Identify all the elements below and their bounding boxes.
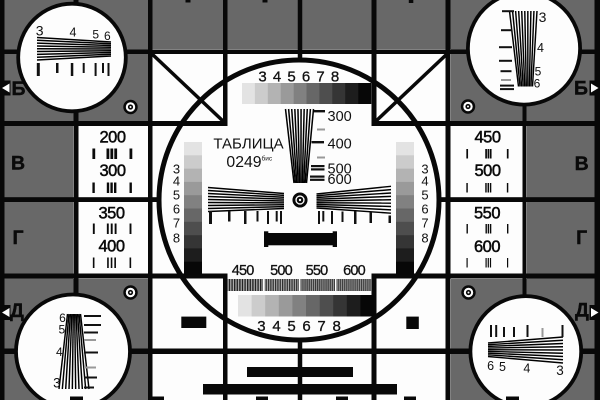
svg-text:4: 4 [272,318,280,335]
svg-text:Г: Г [576,227,587,249]
svg-text:4: 4 [70,26,77,40]
svg-text:8: 8 [421,231,428,246]
svg-text:3: 3 [556,363,564,378]
svg-text:ТАБЛИЦА: ТАБЛИЦА [213,136,283,153]
svg-text:600: 600 [474,238,500,256]
svg-text:7: 7 [316,69,324,86]
svg-text:В: В [11,153,25,175]
svg-text:7: 7 [173,216,180,231]
svg-text:5: 5 [421,188,428,203]
svg-text:бис: бис [262,155,273,163]
svg-text:7: 7 [317,318,325,335]
svg-text:8: 8 [331,69,339,86]
svg-text:500: 500 [270,263,293,279]
svg-text:6: 6 [302,69,310,86]
svg-text:5: 5 [59,323,66,337]
svg-text:8: 8 [333,318,341,335]
svg-text:4: 4 [56,345,63,359]
svg-text:6: 6 [487,359,494,373]
svg-text:Б: Б [574,78,588,100]
svg-text:4: 4 [523,362,530,376]
svg-text:600: 600 [343,263,366,279]
svg-text:550: 550 [474,205,500,223]
svg-text:4: 4 [421,174,428,189]
svg-text:3: 3 [258,69,266,86]
svg-text:450: 450 [474,129,500,147]
svg-text:Д: Д [575,300,589,322]
svg-text:600: 600 [328,172,352,188]
svg-text:5: 5 [173,188,180,203]
svg-text:3: 3 [539,9,547,25]
svg-text:4: 4 [273,69,281,86]
svg-text:Б: Б [11,78,25,100]
svg-text:4: 4 [537,41,544,55]
svg-text:3: 3 [36,22,44,38]
svg-text:5: 5 [92,28,99,42]
svg-text:3: 3 [257,318,265,335]
svg-text:400: 400 [328,137,352,153]
svg-text:0249: 0249 [226,154,261,171]
svg-text:3: 3 [53,376,61,391]
svg-text:5: 5 [287,69,295,86]
svg-text:Д: Д [10,300,24,322]
svg-text:450: 450 [232,263,255,279]
svg-text:7: 7 [421,216,428,231]
svg-text:400: 400 [98,238,124,256]
svg-text:6: 6 [534,77,541,91]
svg-text:550: 550 [306,263,329,279]
svg-text:500: 500 [474,162,500,180]
svg-text:4: 4 [173,174,180,189]
svg-text:Г: Г [12,227,23,249]
svg-text:5: 5 [287,318,295,335]
svg-text:300: 300 [328,109,352,125]
svg-text:6: 6 [421,202,428,217]
svg-text:6: 6 [173,202,180,217]
svg-text:5: 5 [499,360,506,374]
svg-text:В: В [575,153,589,175]
svg-text:350: 350 [98,205,124,223]
svg-text:300: 300 [99,162,125,180]
svg-text:6: 6 [302,318,310,335]
svg-text:8: 8 [173,231,180,246]
svg-text:200: 200 [99,129,125,147]
